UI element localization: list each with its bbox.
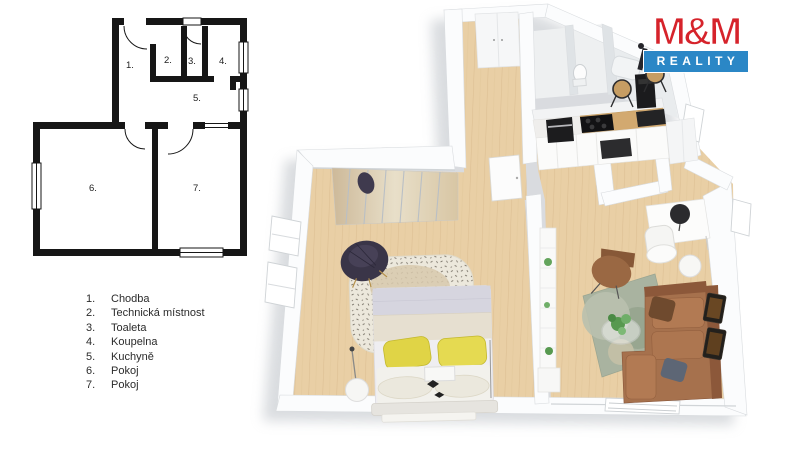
desk-lamp-sphere: [670, 204, 690, 224]
plan2d-windows: [32, 18, 248, 257]
room-number: 3.: [188, 56, 196, 67]
bed-tray: [425, 366, 455, 381]
legend-item-label: Toaleta: [102, 321, 146, 335]
logo-tagline: REALITY: [644, 51, 748, 72]
room-number: 2.: [164, 55, 172, 66]
cooktop: [580, 114, 614, 133]
legend-item-label: Technická místnost: [102, 306, 205, 320]
legend-item: 3. Toaleta: [86, 321, 205, 335]
legend-item: 5. Kuchyně: [86, 350, 205, 364]
door-arc: [124, 26, 147, 49]
window: [731, 199, 751, 236]
legend-item: 2. Technická místnost: [86, 306, 205, 320]
plan2d-walls: [33, 18, 247, 256]
legend-item: 6. Pokoj: [86, 364, 205, 378]
plan2d-glass-partition: [205, 124, 228, 128]
room-legend: 1. Chodba 2. Technická místnost 3. Toale…: [86, 292, 205, 393]
toilet-fixtures: [573, 65, 587, 87]
kitchen-sink-dark: [636, 109, 666, 127]
bed: [369, 285, 498, 422]
bed-pillow-yellow: [437, 335, 487, 368]
legend-item-number: 5.: [86, 350, 102, 364]
legend-item-number: 6.: [86, 364, 102, 378]
oven: [546, 117, 574, 143]
logo-wordmark: M&M: [644, 14, 748, 49]
legend-item-label: Pokoj: [102, 364, 139, 378]
legend-item-label: Koupelna: [102, 335, 158, 349]
shelf-plant: [545, 347, 553, 355]
room-number: 6.: [89, 183, 97, 194]
room-number: 5.: [193, 93, 201, 104]
legend-item-number: 3.: [86, 321, 102, 335]
door-arc: [125, 129, 145, 149]
dishwasher: [600, 138, 632, 159]
legend-item-label: Chodba: [102, 292, 150, 306]
room-number: 1.: [126, 60, 134, 71]
legend-item-label: Kuchyně: [102, 350, 154, 364]
bed-pillow-yellow: [382, 335, 432, 370]
wall-bedroom-north: [298, 146, 455, 170]
legend-item-label: Pokoj: [102, 378, 139, 392]
legend-item: 4. Koupelna: [86, 335, 205, 349]
wardrobe-mirror: [332, 168, 458, 225]
legend-item-number: 2.: [86, 306, 102, 320]
floorplan-2d: 1. 2. 3. 4. 5. 6. 7.: [25, 10, 255, 260]
bed-duvet: [373, 285, 492, 315]
floorplan-sheet: { "logo": { "name": "M&M", "tagline": "R…: [0, 0, 800, 450]
white-stool: [679, 255, 701, 277]
room-number: 7.: [193, 183, 201, 194]
door-leaf: [183, 18, 201, 25]
door-arc: [168, 129, 193, 154]
legend-item-number: 4.: [86, 335, 102, 349]
plan2d-door-arcs: [124, 26, 201, 154]
legend-item: 7. Pokoj: [86, 378, 205, 392]
shelf-plant: [544, 258, 552, 266]
mm-reality-logo: M&M REALITY: [644, 14, 748, 72]
legend-item-number: 1.: [86, 292, 102, 306]
room-number: 4.: [219, 56, 227, 67]
legend-item: 1. Chodba: [86, 292, 205, 306]
legend-item-number: 7.: [86, 378, 102, 392]
window: [265, 262, 297, 308]
